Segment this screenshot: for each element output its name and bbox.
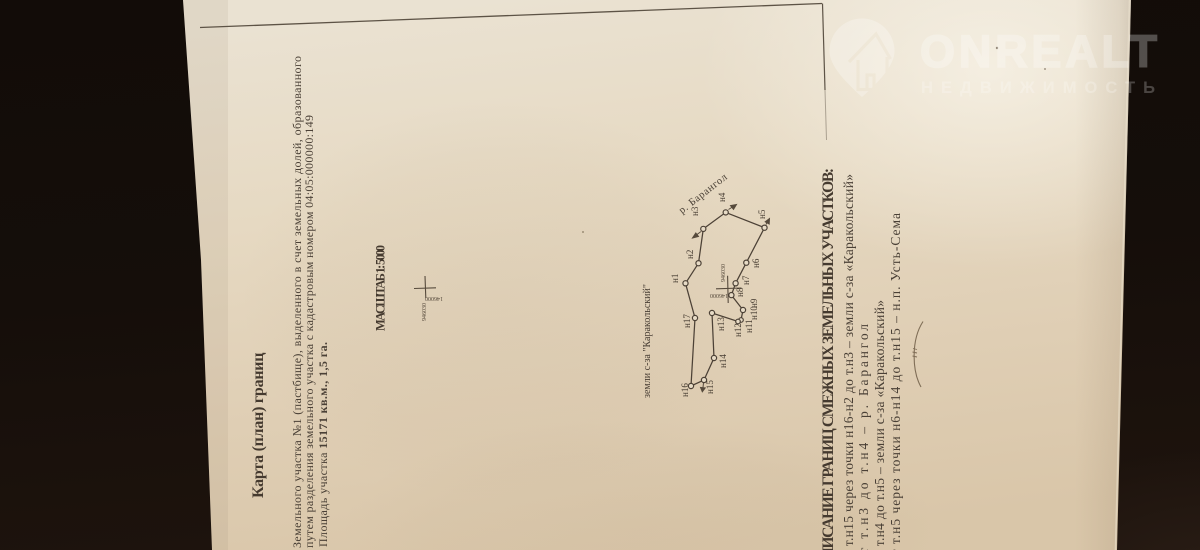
svg-text:НЕДВИЖИМОСТЬ: НЕДВИЖИМОСТЬ — [921, 79, 1163, 97]
svg-text:н16: н16 — [680, 383, 690, 397]
svg-text:н8: н8 — [735, 287, 745, 297]
svg-text:от т.н4 до т.н5 – земли с-за «: от т.н4 до т.н5 – земли с-за «Каракольск… — [872, 300, 887, 550]
svg-text:МАСШТАБ 1: 5000: МАСШТАБ 1: 5000 — [374, 245, 388, 331]
svg-text:н17: н17 — [682, 314, 692, 328]
svg-text:земли с-за "Каракольский": земли с-за "Каракольский" — [642, 284, 653, 398]
svg-text:н6: н6 — [751, 258, 761, 268]
svg-text:н5: н5 — [757, 209, 767, 219]
svg-text:н4: н4 — [717, 192, 727, 202]
svg-text:ОПИСАНИЕ ГРАНИЦ СМЕЖНЫХ ЗЕМЕЛЬ: ОПИСАНИЕ ГРАНИЦ СМЕЖНЫХ ЗЕМЕЛЬНЫХ УЧАСТК… — [820, 168, 837, 550]
svg-text:н10: н10 — [749, 306, 759, 320]
svg-text:946030: 946030 — [422, 303, 428, 321]
svg-text:н12: н12 — [733, 323, 743, 337]
svg-text:Карта (план) границ: Карта (план) границ — [250, 352, 267, 498]
svg-text:н11: н11 — [744, 320, 754, 333]
svg-text:н7: н7 — [741, 275, 751, 285]
svg-text:Площадь участка 15171 кв.м., 1: Площадь участка 15171 кв.м., 1,5 га. — [316, 342, 330, 547]
svg-text:ONREALT: ONREALT — [920, 26, 1159, 77]
svg-text:н2: н2 — [685, 250, 695, 259]
svg-text:от т.н5 через точки н6-н14 до: от т.н5 через точки н6-н14 до т.н15 – н.… — [888, 213, 903, 550]
svg-text:н1: н1 — [670, 274, 680, 283]
svg-text:путем разделения земельного уч: путем разделения земельного участка с ка… — [302, 115, 316, 548]
svg-text:946030: 946030 — [721, 264, 727, 282]
svg-text:146000: 146000 — [710, 292, 728, 298]
svg-text:от т.н15 через точки н16-н2 до: от т.н15 через точки н16-н2 до т.н3 – зе… — [841, 174, 856, 550]
svg-text:146000: 146000 — [425, 295, 443, 301]
svg-text:н15: н15 — [705, 380, 715, 394]
svg-text:н14: н14 — [718, 354, 728, 368]
svg-text:н13: н13 — [716, 317, 726, 331]
